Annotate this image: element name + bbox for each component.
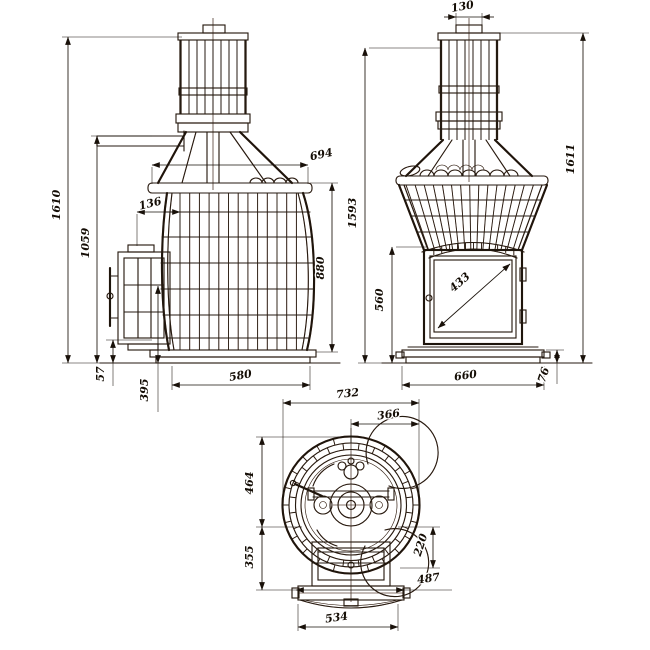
flue-funnel-side (158, 132, 292, 183)
lamella-line (470, 185, 471, 250)
brick-joint (290, 512, 296, 513)
dim-label-side-top-inset: 136 (137, 194, 163, 212)
flue-outlet-pipe (97, 131, 184, 151)
dim-label-top-front-half-depth: 355 (243, 546, 256, 569)
dim-label-front-glass-diagonal: 433 (447, 270, 473, 295)
brick-joint (406, 512, 412, 513)
dim-label-front-overall-height: 1611 (564, 144, 577, 175)
lamella-line (501, 185, 515, 250)
brick-joint (372, 556, 374, 562)
dim-label-side-flue-outlet-height: 1059 (79, 227, 92, 258)
dim-label-top-overall-width: 732 (336, 386, 361, 401)
stone-body-side (161, 193, 314, 350)
front-door (408, 243, 538, 348)
brick-joint (303, 457, 308, 462)
dim-label-side-plinth-height: 57 (94, 366, 107, 382)
brick-joint (290, 497, 296, 498)
lamella-line (495, 185, 506, 250)
lamellae-front (406, 185, 533, 250)
base-side (150, 350, 316, 363)
brick-joint (411, 521, 417, 523)
top-view-geometry (283, 416, 439, 608)
brick-joint (395, 539, 400, 543)
door-latch (426, 295, 432, 301)
lamella-line (461, 185, 465, 250)
brick-joint (385, 549, 389, 554)
door-handle-side (107, 268, 118, 326)
front-view: 130 1611 1593 560 433 660 76 (346, 0, 592, 390)
brick-joint (333, 439, 335, 445)
dim-label-side-body-height: 880 (314, 256, 327, 279)
brick-joint (327, 556, 329, 562)
lamella-line (433, 185, 446, 250)
brick-joint (395, 457, 400, 462)
chimney-front (436, 18, 502, 182)
dim-label-front-chimney-diameter: 130 (450, 0, 475, 15)
brick-joint (302, 467, 307, 471)
drawing-canvas: 1610 1059 136 694 880 57 395 (0, 0, 650, 650)
lamella-line (483, 185, 488, 250)
side-view: 1610 1059 136 694 880 57 395 (50, 18, 340, 412)
lamellae-side (180, 193, 296, 350)
dim-label-front-firebox-height: 560 (373, 288, 386, 311)
dim-label-side-upper-depth: 694 (309, 146, 334, 163)
dim-label-side-overall-depth: 580 (228, 367, 253, 384)
brick-joint (385, 456, 389, 461)
brick-joint (405, 471, 411, 474)
top-view: 732 366 464 355 220 487 534 (243, 386, 452, 631)
dim-label-top-half-width: 366 (376, 406, 401, 422)
lamella-line (477, 185, 479, 250)
top-ornament (290, 416, 438, 596)
brick-joint (313, 549, 317, 554)
dim-label-top-base-width: 487 (416, 570, 441, 586)
side-view-geometry (97, 18, 340, 363)
lamella-line (442, 185, 452, 250)
stone-body-front (399, 185, 547, 250)
top-slab-side (148, 178, 312, 193)
brick-joint (327, 448, 329, 454)
brick-joint (313, 456, 317, 461)
brick-joint (402, 481, 408, 483)
dim-label-top-rear-half-depth: 464 (243, 472, 256, 495)
lamella-line (452, 185, 459, 250)
brick-joint (333, 565, 335, 571)
dim-label-front-overall-width: 660 (453, 367, 478, 383)
brick-joint (285, 487, 291, 489)
dim-label-top-base-plate-width: 534 (324, 609, 349, 625)
chimney-cage-strips (181, 40, 246, 114)
top-slab-front (396, 164, 548, 185)
brick-joint (405, 536, 411, 539)
base-front (396, 350, 550, 363)
front-view-geometry (382, 18, 592, 363)
lamella-line (489, 185, 497, 250)
side-view-dimensions: 1610 1059 136 694 880 57 395 (50, 37, 338, 412)
brick-joint (367, 565, 369, 571)
brick-joint (406, 497, 412, 498)
brick-joint (317, 446, 320, 452)
stove-technical-drawing: 1610 1059 136 694 880 57 395 (0, 0, 650, 650)
brick-joint (395, 467, 400, 471)
dim-label-side-total-height: 1610 (50, 189, 63, 220)
dim-label-front-plinth-height: 76 (535, 365, 552, 384)
dim-label-side-lower-height: 395 (138, 379, 151, 402)
brick-joint (395, 549, 400, 554)
brick-joint (343, 444, 344, 450)
brick-joint (292, 471, 298, 474)
brick-joint (285, 521, 291, 523)
brick-joint (303, 549, 308, 554)
brick-joint (402, 526, 408, 528)
lamella-line (424, 185, 440, 250)
brick-joint (302, 539, 307, 543)
brick-joint (294, 526, 300, 528)
brick-joint (358, 444, 359, 450)
brick-joint (372, 448, 374, 454)
dim-label-front-casing-height: 1593 (346, 197, 359, 228)
brick-joint (382, 446, 385, 452)
brick-joint (292, 536, 298, 539)
